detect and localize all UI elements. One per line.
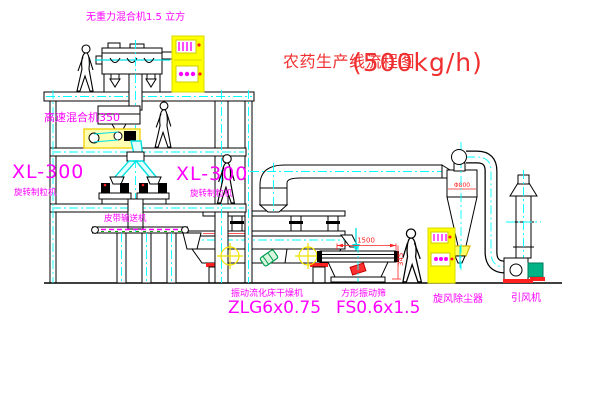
label-gravity-mixer: 无重力混合机1.5 立方 [86,10,185,23]
gauge-icon [444,257,448,261]
conveyor-leg [117,233,176,283]
pilot-lamp-icon [198,72,201,75]
label-granulator-left-model: XL-300 [12,161,84,183]
control-cabinet-roof [172,36,204,92]
conveyor-pulley [182,227,189,234]
label-dryer-model: ZLG6x0.75 [228,298,321,318]
gauge-icon [179,72,183,76]
gauge-icon [191,72,195,76]
person-figure [155,102,171,147]
label-fan: 引风机 [511,291,541,304]
conveyor-pulley [92,227,99,234]
cyclone-outlet-flange [452,150,467,165]
mixer-motor [124,131,136,141]
person-figure [77,45,93,91]
process-flow-diagram: Φ800 [0,0,600,403]
induced-draft-fan [503,258,545,283]
gauge-icon [434,257,438,261]
dryer-inlet-port [230,216,244,231]
pilot-lamp-icon [451,258,454,261]
screen-length-dim: 1500 [357,237,375,245]
diagram-title-capacity: (500kg/h) [352,48,483,77]
person-figure [403,229,421,282]
fan-motor [528,263,543,277]
gauge-icon [439,257,443,261]
belt-conveyor [92,227,201,283]
label-high-speed-mixer: 高速混合机350 [44,110,120,124]
gauge-icon [185,72,189,76]
label-granulator-left-name: 旋转制粒机 [14,187,57,198]
dryer-inlet-port [289,216,303,231]
label-cyclone: 旋风除尘器 [433,292,483,305]
mid-floor-slab [50,148,246,156]
dryer-inlet-port [326,216,340,231]
granulator-left [99,177,131,204]
pilot-lamp-icon [197,43,200,46]
pilot-lamp-icon [449,236,452,239]
cyclone-diameter-dim: Φ800 [454,182,470,189]
cad-drawing-canvas: Φ800 [0,0,600,403]
label-granulator-mid-model: XL-300 [176,163,248,185]
label-screen-model: FS0.6x1.5 [336,298,420,318]
dryer-foot [310,263,328,283]
label-granulator-mid-name: 旋转制粒机 [190,188,233,199]
fan-base [503,279,533,283]
lower-floor-slab [50,204,246,212]
control-cabinet-ground [428,228,455,283]
exhaust-duct [250,163,466,212]
label-belt-conveyor: 皮带输送机 [104,213,147,224]
